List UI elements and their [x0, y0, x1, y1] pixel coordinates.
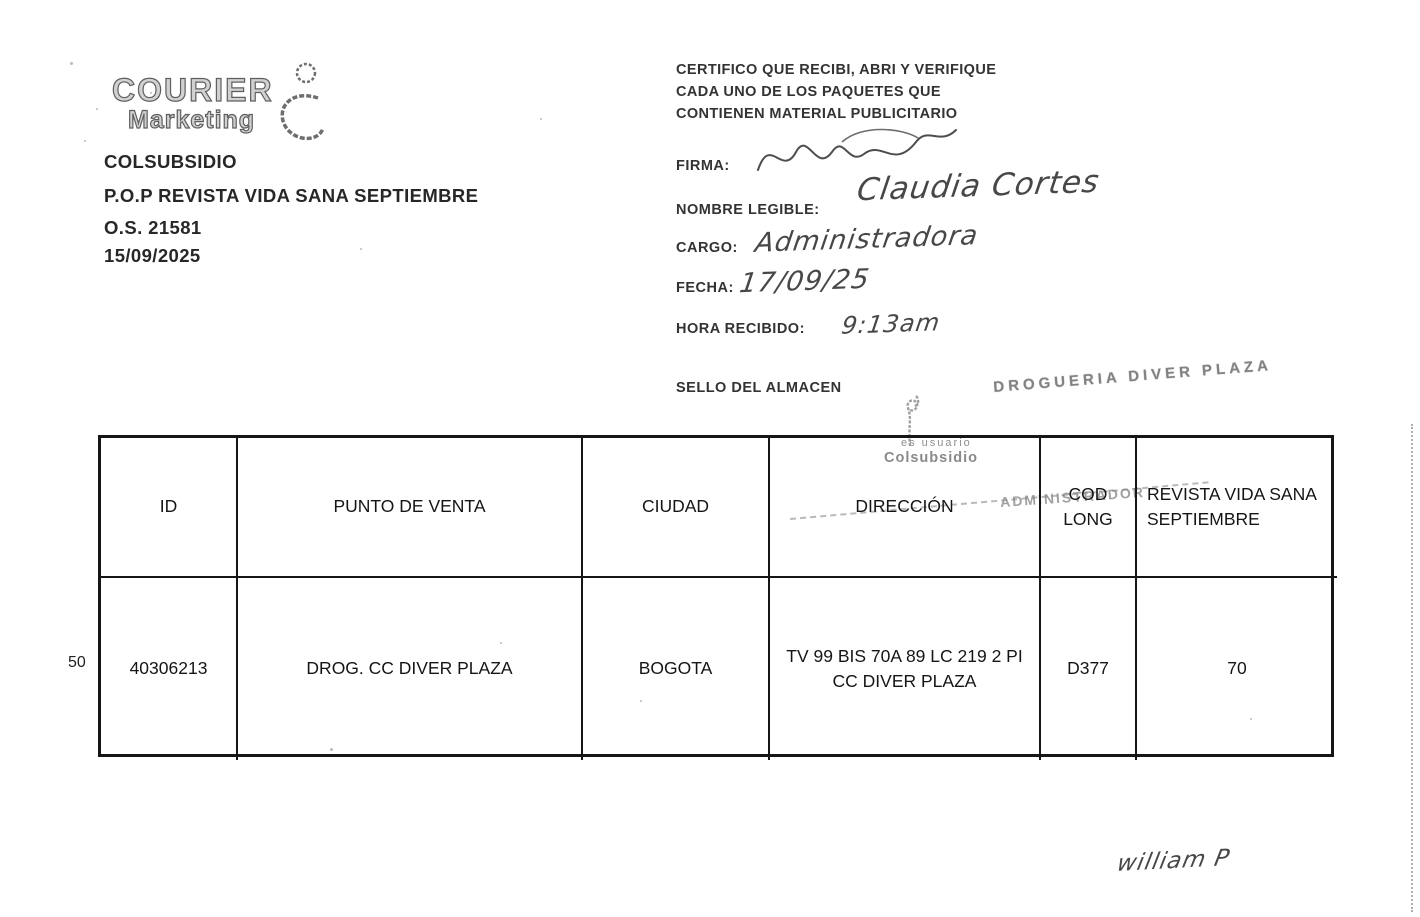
row-index-number: 50 — [68, 654, 86, 672]
header-cell-id: ID — [101, 438, 238, 578]
handwritten-hora: 9:13am — [840, 308, 942, 339]
handwritten-nombre: Claudia Cortes — [855, 164, 1102, 208]
hora-recibido-label: HORA RECIBIDO: — [676, 321, 805, 337]
certification-line: CONTIENEN MATERIAL PUBLICITARIO — [676, 106, 957, 122]
header-cell-ciudad: CIUDAD — [583, 438, 770, 578]
stamp-drogueria-diver-plaza: DROGUERIA DIVER PLAZA — [993, 357, 1273, 396]
cell-id: 40306213 — [101, 578, 238, 760]
courier-logo-text: COURIER — [112, 72, 274, 109]
scan-speck — [150, 92, 152, 94]
scan-speck — [640, 700, 642, 702]
scan-speck — [360, 248, 362, 250]
scan-edge-artifact — [1411, 424, 1413, 912]
certification-line: CERTIFICO QUE RECIBI, ABRI Y VERIFIQUE — [676, 62, 996, 78]
handwritten-fecha: 17/09/25 — [737, 264, 871, 299]
cargo-label: CARGO: — [676, 240, 738, 256]
nombre-legible-label: NOMBRE LEGIBLE: — [676, 202, 820, 218]
scan-speck — [70, 62, 73, 65]
client-name: COLSUBSIDIO — [104, 151, 237, 173]
courier-handwritten-signature: william P — [1115, 845, 1232, 877]
distribution-table: ID PUNTO DE VENTA CIUDAD DIRECCIÓN COD L… — [98, 435, 1334, 757]
firma-label: FIRMA: — [676, 158, 730, 174]
order-date: 15/09/2025 — [104, 245, 201, 267]
handwritten-cargo: Administradora — [753, 220, 980, 259]
certification-line: CADA UNO DE LOS PAQUETES QUE — [676, 84, 941, 100]
header-cell-punto-de-venta: PUNTO DE VENTA — [238, 438, 583, 578]
order-number: O.S. 21581 — [104, 217, 202, 239]
fecha-label: FECHA: — [676, 280, 734, 296]
courier-ribbon-logo-icon — [268, 58, 328, 153]
campaign-name: P.O.P REVISTA VIDA SANA SEPTIEMBRE — [104, 185, 478, 207]
cell-direccion: TV 99 BIS 70A 89 LC 219 2 PI CC DIVER PL… — [770, 578, 1041, 760]
cell-cod-long: D377 — [1041, 578, 1137, 760]
cell-punto-de-venta: DROG. CC DIVER PLAZA — [238, 578, 583, 760]
courier-logo-subtext: Marketing — [128, 106, 255, 135]
scan-speck — [1250, 718, 1252, 720]
cell-revista-qty: 70 — [1137, 578, 1337, 760]
scan-speck — [96, 108, 98, 110]
cell-ciudad: BOGOTA — [583, 578, 770, 760]
header-cell-cod-long: COD LONG — [1041, 438, 1137, 578]
header-cell-direccion: DIRECCIÓN — [770, 438, 1041, 578]
scan-speck — [540, 118, 542, 120]
scanned-delivery-receipt: COURIER Marketing COLSUBSIDIO P.O.P REVI… — [0, 0, 1420, 917]
scan-speck — [330, 748, 333, 751]
sello-almacen-label: SELLO DEL ALMACEN — [676, 380, 842, 396]
scan-speck — [500, 642, 502, 644]
scan-speck — [84, 140, 86, 142]
header-cell-revista: REVISTA VIDA SANA SEPTIEMBRE — [1137, 438, 1337, 578]
